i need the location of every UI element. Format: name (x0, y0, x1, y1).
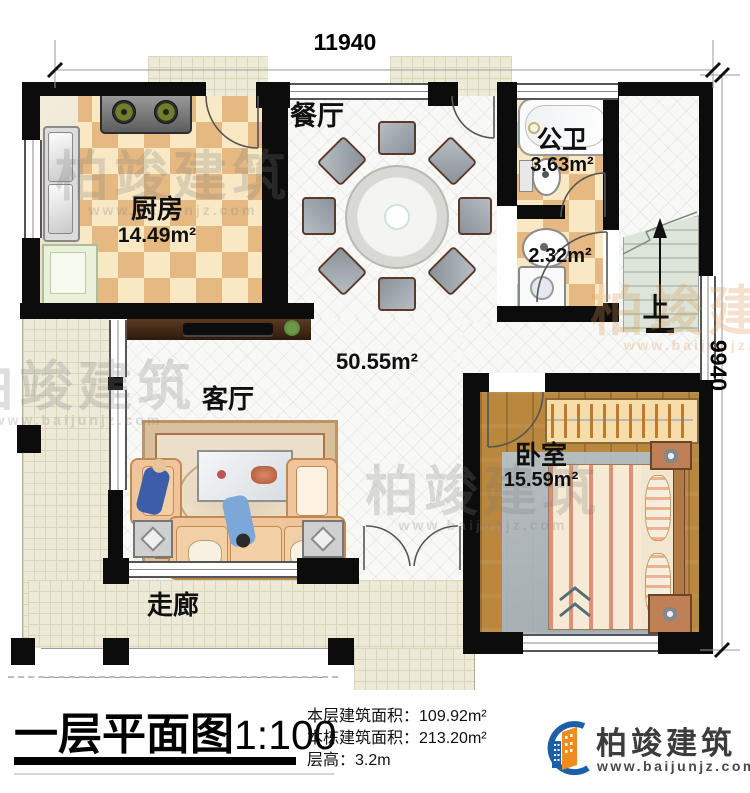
stat-value: 109.92m² (419, 708, 487, 725)
living-label: 客厅 (163, 386, 293, 413)
footer: 一层平面图1:100 本层建筑面积：109.92m² 本栋建筑面积：213.20… (0, 690, 750, 793)
wall-segment (699, 380, 713, 654)
wall-segment (699, 96, 713, 276)
wall-segment (297, 558, 359, 584)
cabinet-top (50, 252, 86, 294)
dining-chair (378, 121, 416, 155)
open-area-label: 50.55m² (307, 350, 447, 373)
stat-value: 213.20m² (419, 730, 487, 747)
wall-segment (108, 490, 123, 560)
pillar (17, 425, 41, 453)
stat-value: 3.2m (355, 752, 391, 769)
wall-segment (463, 392, 480, 632)
plant-icon (284, 320, 300, 336)
pillow (645, 475, 671, 541)
burner-icon (112, 100, 136, 124)
plan-title: 一层平面图1:100 (14, 698, 337, 762)
logo-url: www.baijunjz.com (597, 758, 750, 774)
wardrobe (545, 398, 699, 444)
wall-segment (658, 632, 713, 654)
dining-chair (458, 197, 492, 235)
tv (183, 323, 273, 335)
bedroom-label: 卧室 (481, 442, 601, 469)
burner-icon (154, 100, 178, 124)
washing-machine (518, 266, 566, 310)
coffee-table (197, 450, 293, 502)
kitchen-sink (43, 126, 80, 242)
window (517, 83, 618, 100)
stat-floor-area: 本层建筑面积：109.92m² (307, 702, 567, 726)
window (109, 320, 127, 377)
pillar (103, 638, 129, 665)
wall-segment (463, 373, 489, 392)
stat-floor-height: 层高：3.2m (307, 746, 567, 770)
stat-label: 本层建筑面积： (307, 708, 419, 725)
window (290, 83, 428, 100)
stat-label: 本栋建筑面积： (307, 730, 419, 747)
wall-segment (108, 377, 123, 390)
wall-segment (545, 373, 713, 392)
stat-building-area: 本栋建筑面积：213.20m² (307, 724, 567, 748)
dining-table-center (384, 204, 410, 230)
wall-segment (103, 558, 129, 584)
stat-label: 层高： (307, 752, 355, 769)
wall-segment (463, 632, 523, 654)
pillar (11, 638, 35, 665)
wall-segment (428, 82, 458, 106)
kitchen-label: 厨房 (92, 196, 222, 223)
nightstand (650, 441, 692, 470)
logo: 柏竣建筑 www.baijunjz.com (540, 718, 745, 780)
kitchen-cabinet (42, 244, 98, 310)
corridor-label: 走廊 (118, 592, 228, 619)
logo-name: 柏竣建筑 (596, 718, 736, 763)
wall-segment (22, 238, 40, 306)
dimension-top: 11940 (290, 29, 400, 56)
plan-title-text: 一层平面图 (14, 710, 234, 759)
eave-dashed-line-1 (8, 676, 338, 678)
stove (100, 90, 192, 134)
window (523, 634, 658, 652)
bath-area-label: 3.63m² (512, 155, 612, 176)
wall-segment (22, 82, 206, 96)
window (24, 140, 42, 238)
wall-segment (22, 96, 40, 140)
dining-label: 餐厅 (277, 102, 357, 130)
nightstand (648, 594, 692, 634)
sink-basin (48, 132, 73, 182)
sink-basin (48, 184, 73, 234)
corridor-floor (28, 580, 480, 648)
utility-area-label: 2.32m² (505, 246, 615, 267)
dining-chair (378, 277, 416, 311)
bedroom-area-label: 15.59m² (481, 470, 601, 491)
pillar (328, 638, 354, 665)
title-underline-thin (14, 773, 334, 775)
dining-chair (302, 197, 336, 235)
end-table (302, 520, 344, 558)
title-underline-thick (14, 757, 296, 765)
window (129, 561, 297, 578)
floor-plan-page: 柏竣建筑 www.baijunjz.com 柏竣建筑 www.baijunjz.… (0, 0, 750, 793)
dimension-right: 9940 (705, 326, 732, 406)
logo-building-icon (540, 718, 592, 778)
stairs-up-label: 上 (634, 294, 678, 322)
entry-step-floor (354, 648, 475, 691)
wall-segment (497, 306, 619, 322)
bath-label: 公卫 (512, 127, 612, 153)
wall-segment (517, 205, 565, 219)
south-porch-band (41, 648, 328, 678)
window (109, 390, 127, 490)
end-table (133, 520, 173, 558)
wall-segment (618, 82, 713, 96)
kitchen-area-label: 14.49m² (92, 225, 222, 247)
